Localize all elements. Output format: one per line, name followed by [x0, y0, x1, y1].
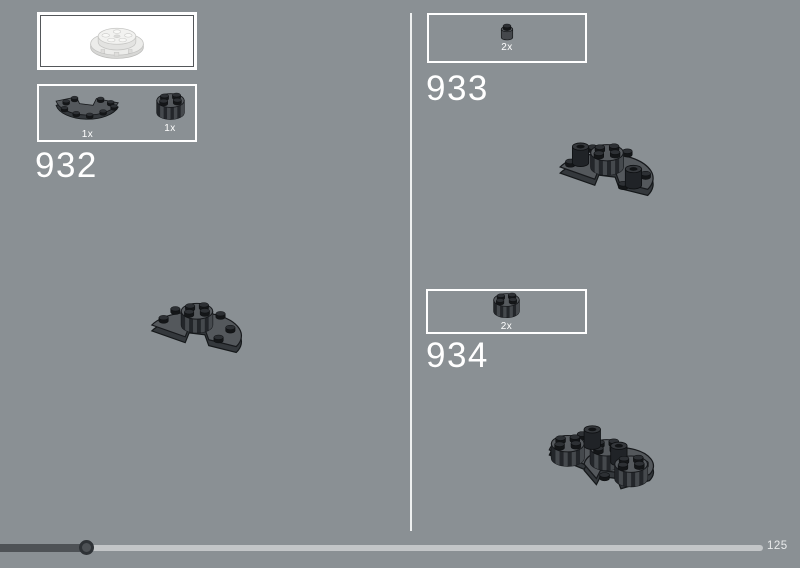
half-circle-plate-image: [48, 86, 128, 128]
step-933-parts-box: 2x: [427, 13, 587, 63]
part-cell: 2x: [491, 292, 522, 332]
step-932-assembly-image: [142, 279, 250, 371]
step-933-assembly-image: [550, 124, 664, 214]
part-cell: 1x: [154, 92, 187, 134]
column-divider: [410, 13, 412, 531]
step-934-parts-box: 2x: [426, 289, 587, 334]
step-932-parts-box: 1x 1x: [37, 84, 197, 142]
round-grille-brick-image: [154, 92, 187, 122]
progress-track[interactable]: [0, 545, 763, 551]
round-1x1-brick-image: [500, 23, 514, 41]
page-number: 125: [767, 540, 788, 552]
part-count-label: 1x: [164, 124, 176, 134]
progress-handle[interactable]: [79, 540, 94, 555]
part-cell: 2x: [500, 23, 514, 53]
step-number: 933: [426, 71, 489, 106]
instruction-page: 1x 1x 932 2x 933: [0, 0, 800, 568]
progress-fill: [0, 544, 87, 552]
step-934-assembly-image: [543, 411, 661, 501]
part-count-label: 1x: [82, 130, 94, 140]
part-cell: 1x: [48, 86, 128, 140]
step-number: 934: [426, 338, 489, 373]
part-count-label: 2x: [501, 43, 513, 53]
part-count-label: 2x: [501, 322, 513, 332]
round-grille-brick-image: [491, 292, 522, 320]
white-turntable-part-image: [85, 20, 149, 62]
scale-reference-box: [40, 15, 194, 67]
step-number: 932: [35, 148, 98, 183]
